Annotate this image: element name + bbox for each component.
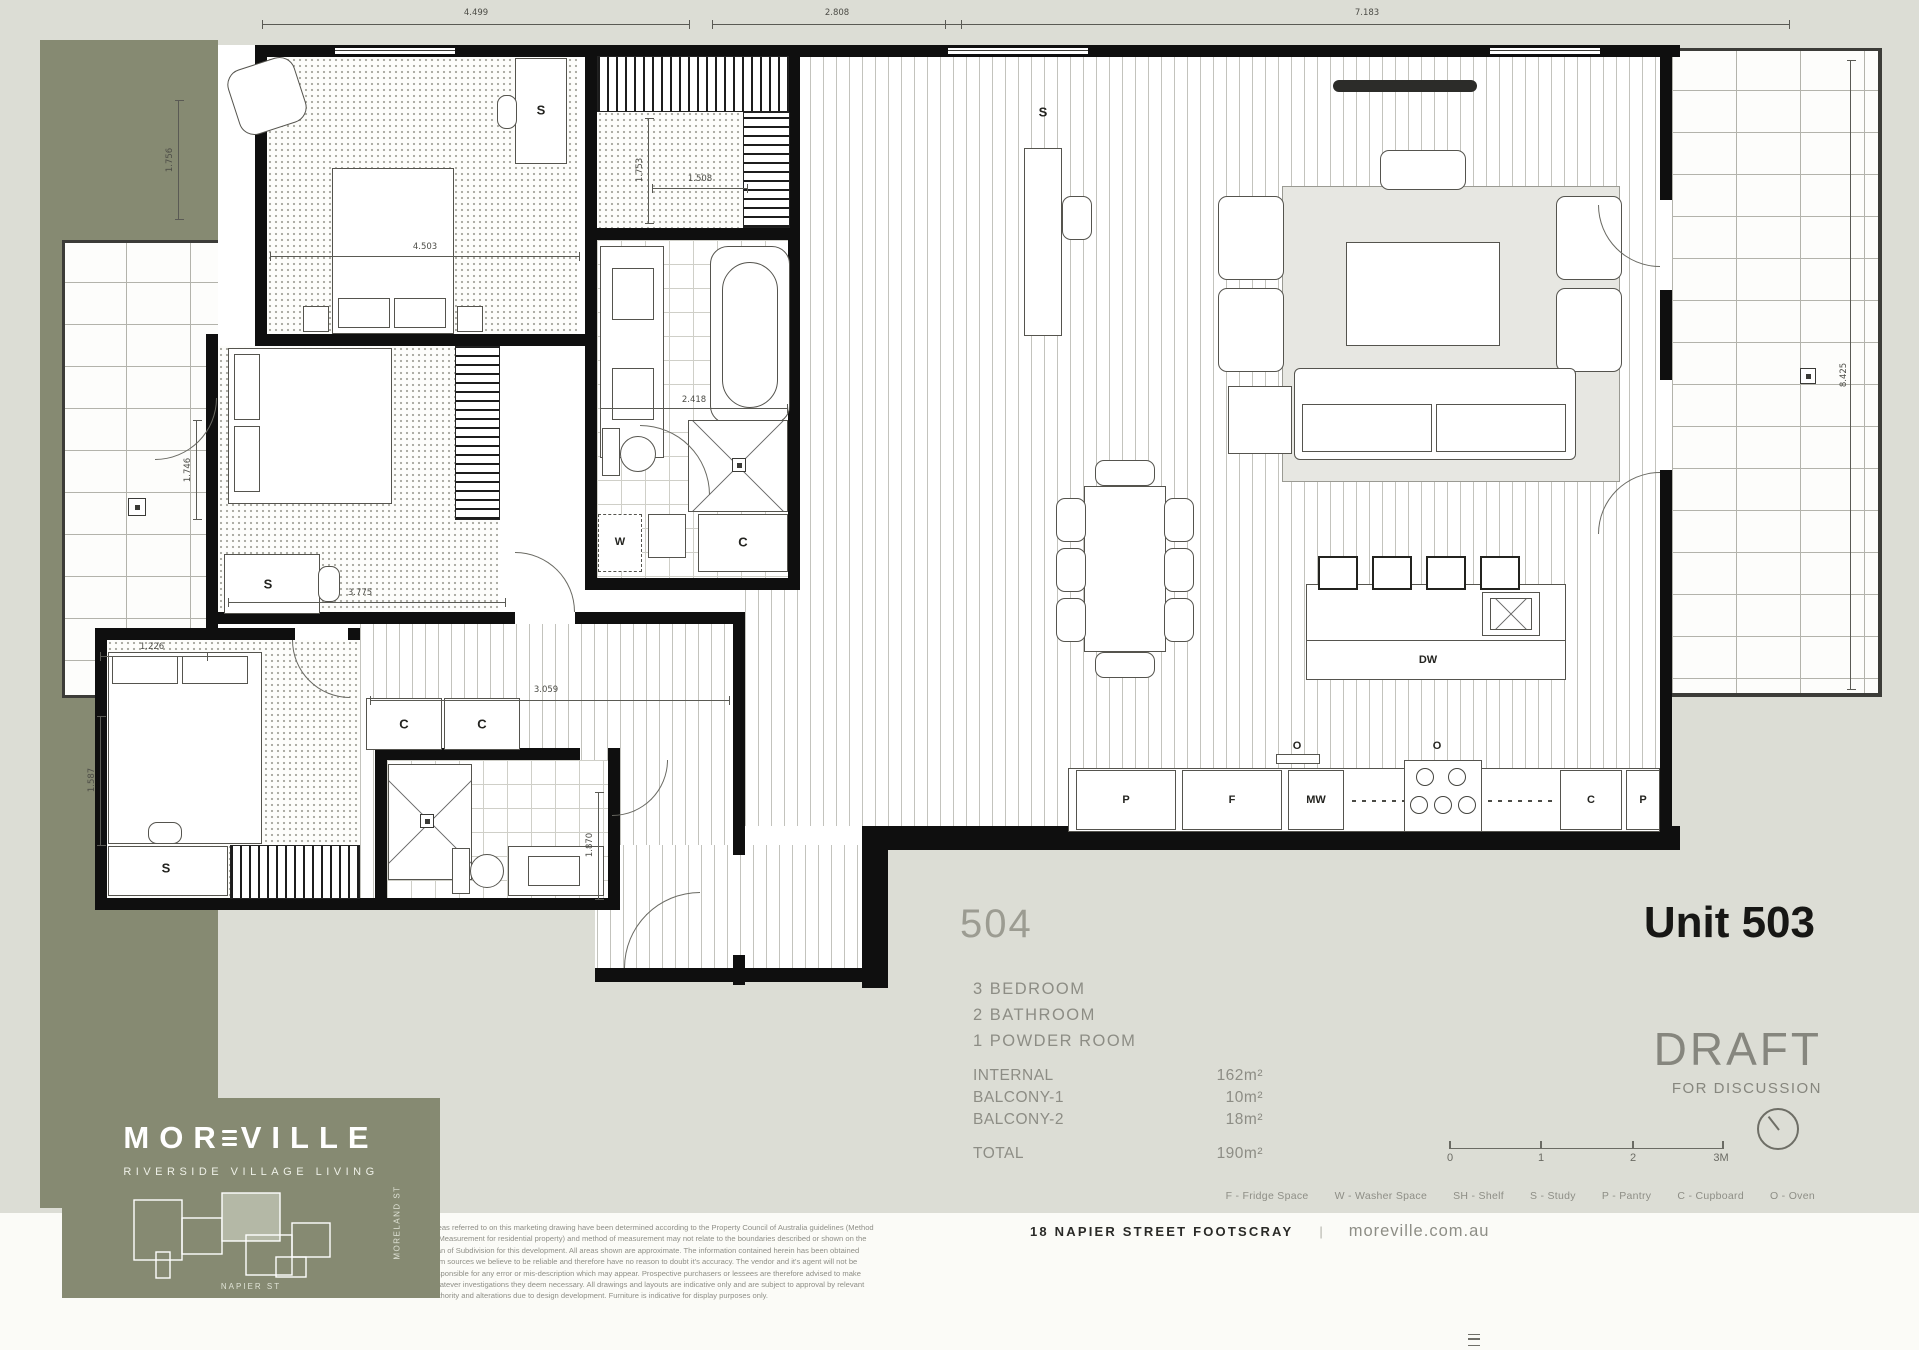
area-label: INTERNAL [973,1065,1165,1087]
hall-top-wall [575,612,745,624]
bed-pillow [234,426,260,492]
dining-chair [1380,150,1466,190]
basin [612,368,654,420]
master-divider-wall [255,334,585,346]
bedroom3-top-wall [95,628,295,640]
fridge-label: F [1229,794,1236,806]
floor-drain [420,814,434,828]
dim-label: 2.808 [825,8,849,18]
desk-chair [497,95,517,129]
dining-chair [1164,598,1194,642]
area-total-row: TOTAL 190m² [973,1131,1263,1165]
dim-label: 1.508 [688,174,712,184]
door-jamb [608,748,620,760]
burner [1448,768,1466,786]
dining-chair [1056,498,1086,542]
bed-pillow [182,656,248,684]
balcony-2-edge [1672,693,1882,697]
study-label: S [264,577,273,592]
burner [1458,796,1476,814]
bar-stool [1480,556,1520,590]
neighbor-unit-number: 504 [960,902,1033,947]
basin [528,856,580,886]
burner [1416,768,1434,786]
wir-wardrobe-side [743,112,790,228]
cupboard-label: C [399,717,408,732]
neighbor-party-wall [862,826,888,988]
area-value: 10m² [1165,1087,1263,1109]
area-row: INTERNAL 162m² [973,1065,1263,1087]
bar-stool [1426,556,1466,590]
dim-line [598,792,600,900]
island-sink-inner [1490,598,1532,630]
street-address: 18 NAPIER STREET FOOTSCRAY [1030,1224,1293,1239]
dining-chair [1164,498,1194,542]
legend-item: P - Pantry [1602,1190,1652,1202]
website-link[interactable]: moreville.com.au [1349,1222,1490,1241]
door-jamb [348,628,360,640]
pantry-label: P [1122,794,1129,806]
bed-pillow [338,298,390,328]
wordmark-pre: MOR [123,1120,225,1156]
dim-line [228,602,506,604]
legend-item: SH - Shelf [1453,1190,1504,1202]
toilet-cistern [452,848,470,894]
balcony-2-edge [1672,48,1882,51]
dim-line [648,118,650,224]
dishwasher-label: DW [1419,654,1437,666]
street-label-bottom: NAPIER ST [62,1282,440,1291]
bed-pillow [234,354,260,420]
window-sill [335,50,455,51]
dim-label: 7.183 [1355,8,1379,18]
dim-line [100,656,208,658]
dining-chair [1095,652,1155,678]
area-label: BALCONY-1 [973,1087,1165,1109]
logo-tagline: RIVERSIDE VILLAGE LIVING [62,1166,440,1178]
washer-label: W [615,536,625,548]
microwave-label: MW [1306,794,1326,806]
dining-chair [1218,288,1284,372]
study-label: S [1039,105,1048,120]
bathtub-inner [722,262,778,408]
bedroom2-left-wall [206,334,218,630]
dim-line [370,700,730,702]
bedside-table [303,306,329,332]
cupboard-label: C [477,717,486,732]
window-gap [335,48,455,54]
area-table: INTERNAL 162m² BALCONY-1 10m² BALCONY-2 … [973,1065,1263,1165]
dim-line [652,188,748,190]
side-table [1228,386,1292,454]
dim-label: 1.746 [183,458,193,482]
dining-chair [1556,288,1622,372]
dim-label: 4.499 [464,8,488,18]
draft-label: DRAFT [1500,1022,1822,1076]
basin [612,268,654,320]
dim-line [262,24,690,26]
oven-label: O [1433,740,1442,752]
scale-tick [1722,1141,1724,1149]
dim-line [100,716,102,846]
dim-label: 3.775 [348,588,372,598]
scale-label-2: 2 [1630,1152,1636,1164]
area-label: BALCONY-2 [973,1109,1165,1131]
dim-label: 4.503 [413,242,437,252]
summary-powder: 1 POWDER ROOM [973,1032,1263,1051]
floor-drain [732,458,746,472]
bathroom1-bottom-wall [585,578,800,590]
north-needle [1768,1116,1780,1131]
moreville-wordmark: MOR VILLE [62,1120,440,1156]
living-right-wall [1660,45,1672,200]
sofa-cushion [1436,404,1566,452]
dim-label: 2.418 [682,395,706,405]
sofa-cushion [1302,404,1432,452]
scale-label-1: 1 [1538,1152,1544,1164]
dim-label: 1.587 [87,768,97,792]
scale-tick [1540,1141,1542,1149]
bedroom3-wardrobe [230,845,360,899]
scale-tick [1632,1141,1634,1149]
dim-line [270,256,580,258]
legend-item: W - Washer Space [1335,1190,1428,1202]
oven-label: O [1293,740,1302,752]
burner [1434,796,1452,814]
oven-under-bench [1276,754,1320,764]
area-total-value: 190m² [1165,1131,1263,1165]
bottom-exterior-wall [95,898,620,910]
study-label: S [537,103,546,118]
dining-chair [1218,196,1284,280]
bathroom1-left-wall [585,240,597,590]
living-right-wall [1660,345,1672,380]
unit-title: Unit 503 [1520,898,1815,948]
disclaimer-text: Areas referred to on this marketing draw… [430,1222,874,1302]
for-discussion-label: FOR DISCUSSION [1500,1080,1822,1097]
dim-line [712,24,962,26]
bathroom2-left-wall [375,760,387,910]
balcony-1-edge [62,240,65,698]
moreville-logo-block: MOR VILLE RIVERSIDE VILLAGE LIVING NAPIE… [62,1098,440,1298]
toilet-bowl [470,854,504,888]
legend-item: O - Oven [1770,1190,1815,1202]
area-row: BALCONY-2 18m² [973,1109,1263,1131]
window-sill [1490,50,1600,51]
wir-left-wall [585,45,597,240]
dining-chair [1164,548,1194,592]
pantry-label: P [1639,794,1646,806]
wir-wardrobe [597,56,789,112]
bedside-table [457,306,483,332]
dim-line [945,24,1790,26]
scale-label-3m: 3M [1713,1152,1728,1164]
balcony-2-edge [1878,48,1882,696]
dim-line [1850,60,1852,690]
dim-line [178,100,180,220]
bench-centerline [1488,800,1552,802]
site-plan-icon [126,1190,376,1282]
cupboard-label: C [738,535,747,550]
balcony-marker [1800,368,1816,384]
bar-stool [1372,556,1412,590]
page-mark-icon [1468,1334,1480,1346]
toilet-cistern [602,428,620,476]
area-total-label: TOTAL [973,1131,1165,1165]
legend-item: C - Cupboard [1677,1190,1744,1202]
dim-label: 1.756 [165,148,175,172]
dining-chair [1095,460,1155,486]
scale-tick [1449,1141,1451,1149]
dim-line [600,408,788,410]
scale-bar: 0 1 2 3M [1449,1140,1724,1166]
area-value: 162m² [1165,1065,1263,1087]
bar-stool [1318,556,1358,590]
area-row: BALCONY-1 10m² [973,1087,1263,1109]
bathroom1-top-wall [585,228,800,240]
dim-label: 1.226 [140,642,164,652]
footer-address-row: 18 NAPIER STREET FOOTSCRAY | moreville.c… [1030,1222,1820,1241]
legend-item: F - Fridge Space [1226,1190,1309,1202]
dim-line [196,420,198,520]
dining-chair [1056,598,1086,642]
bed-pillow [394,298,446,328]
laundry-trough [648,514,686,558]
dim-label: 8.425 [1839,363,1849,387]
window-gap [948,48,1088,54]
wordmark-post: VILLE [241,1120,379,1156]
study-desk [1024,148,1062,336]
desk-chair [318,566,340,602]
living-right-wall [1660,290,1672,345]
scale-bar-line [1449,1148,1724,1149]
fixture-legend: F - Fridge Space W - Washer Space SH - S… [1000,1190,1815,1202]
dim-label: 1.753 [635,158,645,182]
living-right-wall [1660,470,1672,848]
study-label: S [162,861,171,876]
bed-pillow [112,656,178,684]
desk-chair [148,822,182,844]
balcony-marker [128,498,146,516]
address-separator: | [1319,1224,1322,1239]
entry-bottom-wall [595,968,888,982]
bedroom2-wardrobe [455,346,500,520]
floorplan-page: SSSWCCCSDWPFMWCPOO4.4992.8087.1838.4251.… [0,0,1919,1350]
second-dining-table [1084,486,1166,652]
draft-stamp: DRAFT FOR DISCUSSION [1500,1022,1822,1097]
street-label-side: MORELAND ST [392,1185,401,1259]
dining-chair [1056,548,1086,592]
window-gap [1490,48,1600,54]
summary-bathrooms: 2 BATHROOM [973,1006,1263,1025]
scale-label-0: 0 [1447,1152,1453,1164]
corridor-wall [733,612,745,855]
desk-chair [1062,196,1092,240]
balcony-1-edge [62,240,218,243]
unit-summary: 3 BEDROOM 2 BATHROOM 1 POWDER ROOM INTER… [973,980,1263,1165]
tv-unit [1333,80,1477,92]
wave-e-icon [222,1130,237,1146]
dim-label: 1.870 [585,833,595,857]
legend-item: S - Study [1530,1190,1576,1202]
area-value: 18m² [1165,1109,1263,1131]
window-sill [948,50,1088,51]
burner [1410,796,1428,814]
cupboard-label: C [1587,794,1595,806]
north-indicator-icon [1757,1108,1799,1150]
dining-table [1346,242,1500,346]
summary-bedrooms: 3 BEDROOM [973,980,1263,999]
dim-label: 3.059 [534,685,558,695]
